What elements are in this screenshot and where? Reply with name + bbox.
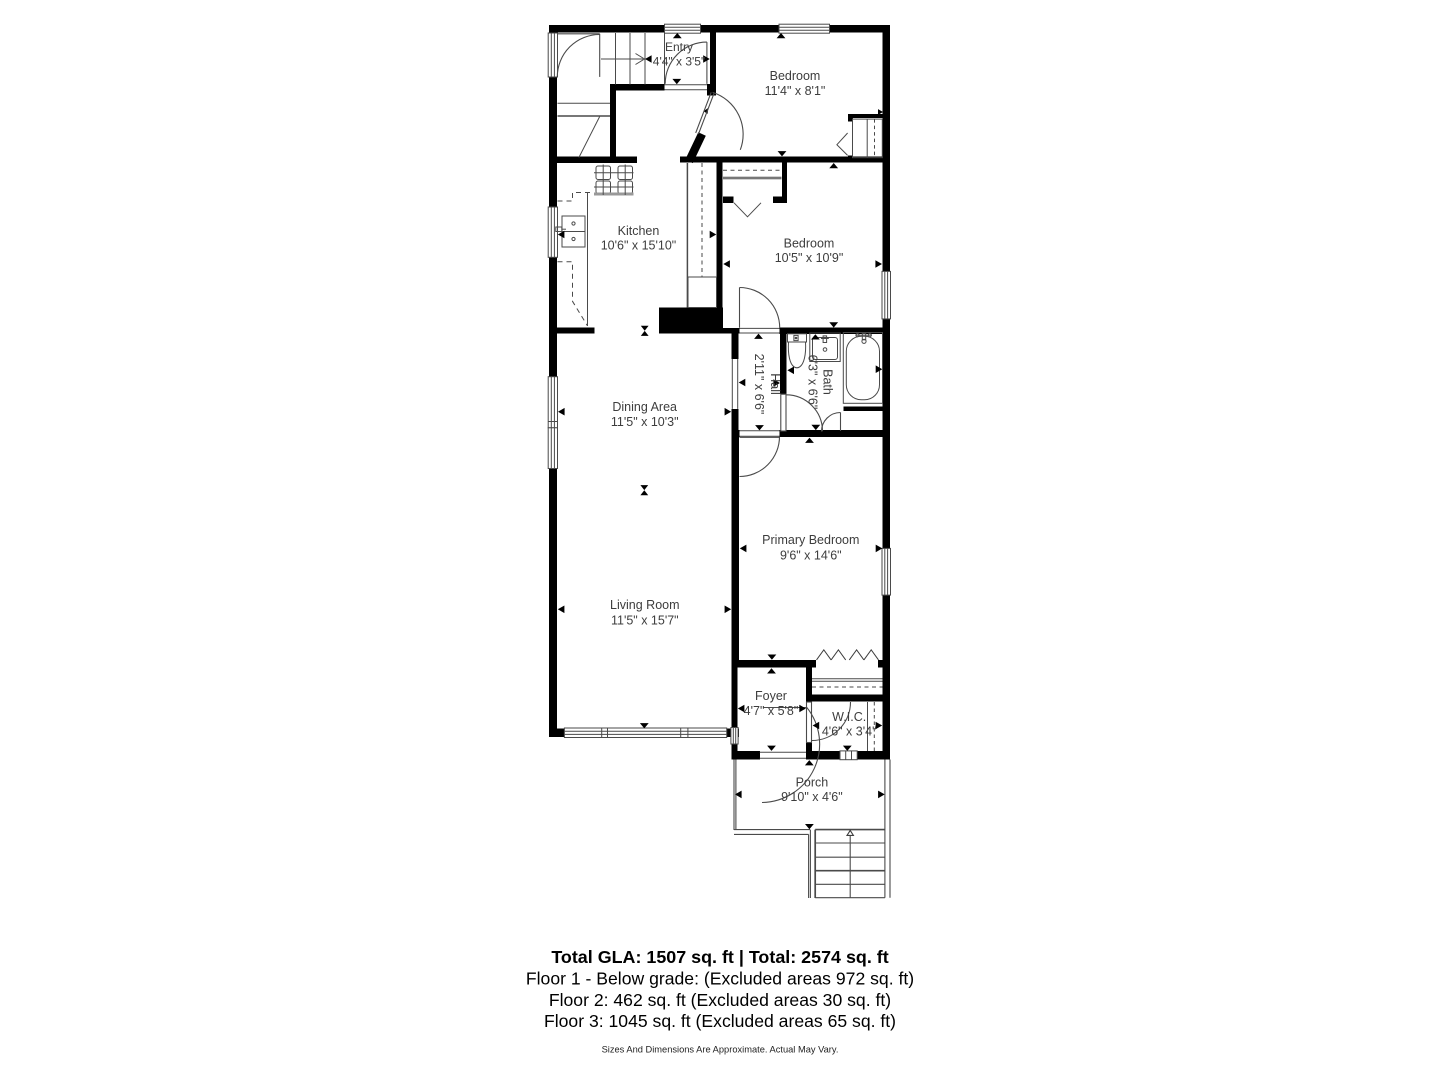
- svg-text:9'6" x 14'6": 9'6" x 14'6": [780, 549, 842, 563]
- svg-text:11'4" x 8'1": 11'4" x 8'1": [765, 84, 826, 98]
- svg-text:Primary Bedroom: Primary Bedroom: [762, 533, 859, 547]
- svg-text:2'11" x 6'6": 2'11" x 6'6": [752, 354, 766, 415]
- svg-text:4'6" x 3'4": 4'6" x 3'4": [822, 725, 877, 739]
- svg-text:11'5" x 10'3": 11'5" x 10'3": [611, 415, 679, 429]
- svg-text:Kitchen: Kitchen: [618, 224, 660, 238]
- svg-text:11'5" x 15'7": 11'5" x 15'7": [611, 614, 679, 628]
- svg-text:9'10" x 4'6": 9'10" x 4'6": [781, 790, 843, 804]
- svg-text:4'4" x 3'5": 4'4" x 3'5": [653, 54, 705, 68]
- svg-text:W.I.C.: W.I.C.: [832, 710, 866, 724]
- svg-text:Bedroom: Bedroom: [784, 236, 835, 250]
- svg-text:Bath: Bath: [820, 369, 834, 395]
- svg-text:Sizes And Dimensions Are Appro: Sizes And Dimensions Are Approximate. Ac…: [602, 1045, 839, 1055]
- svg-text:10'5" x 10'9": 10'5" x 10'9": [775, 251, 844, 265]
- svg-text:Dining Area: Dining Area: [612, 400, 677, 414]
- svg-text:6'3" x 6'6": 6'3" x 6'6": [805, 355, 819, 410]
- svg-text:Floor 2: 462 sq. ft (Excluded: Floor 2: 462 sq. ft (Excluded areas 30 s…: [549, 990, 891, 1010]
- svg-text:Floor 3: 1045 sq. ft (Excluded: Floor 3: 1045 sq. ft (Excluded areas 65 …: [544, 1011, 896, 1031]
- svg-text:Total GLA: 1507 sq. ft | Total: Total GLA: 1507 sq. ft | Total: 2574 sq.…: [551, 947, 888, 967]
- svg-text:Entry: Entry: [665, 40, 693, 54]
- svg-text:4'7" x 5'8": 4'7" x 5'8": [744, 704, 799, 718]
- svg-text:10'6" x 15'10": 10'6" x 15'10": [601, 239, 677, 253]
- svg-text:Foyer: Foyer: [755, 689, 787, 703]
- svg-text:Floor 1 - Below grade: (Exclud: Floor 1 - Below grade: (Excluded areas 9…: [526, 969, 914, 989]
- svg-text:Living Room: Living Room: [610, 598, 679, 612]
- svg-text:Porch: Porch: [796, 775, 829, 789]
- svg-text:Hall: Hall: [768, 373, 782, 395]
- svg-text:Bedroom: Bedroom: [770, 69, 821, 83]
